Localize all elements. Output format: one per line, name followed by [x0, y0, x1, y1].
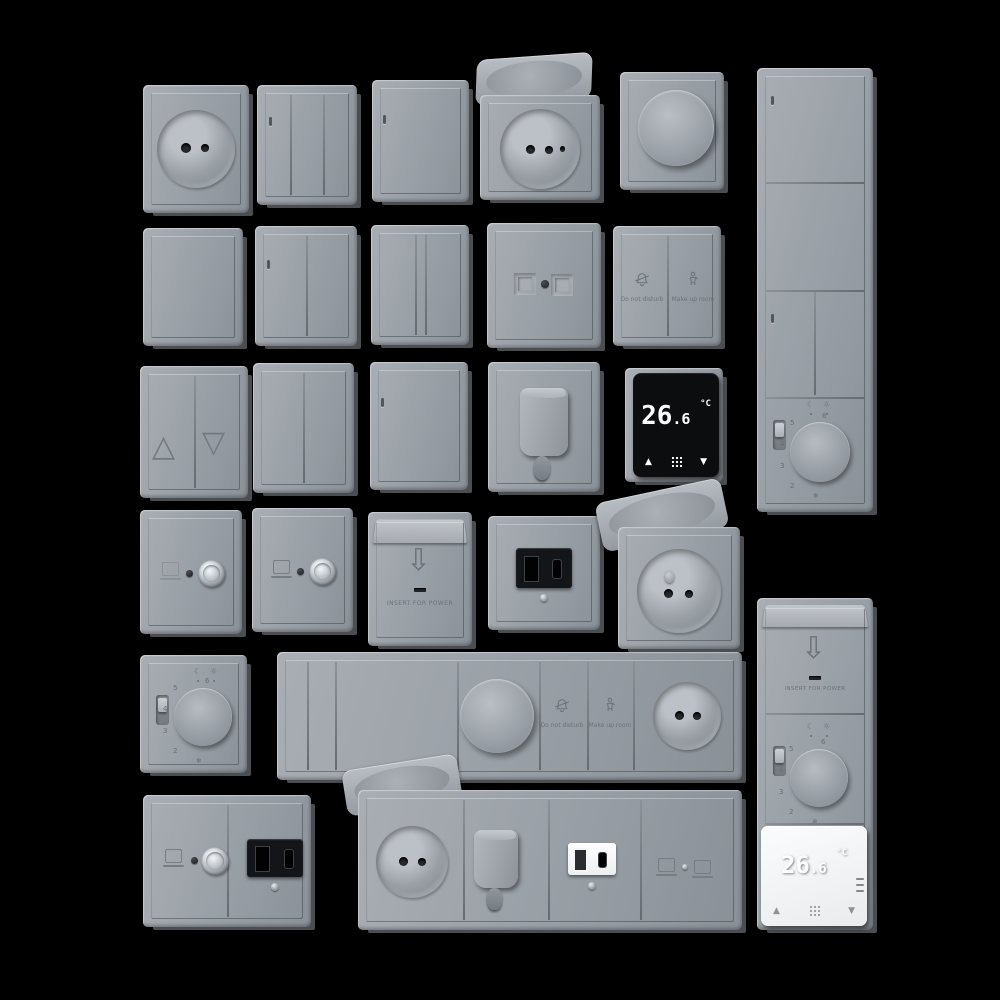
analog-thermostat-dial: ☾ ☼ 6 5 4 3 2 ❄ [140, 655, 247, 773]
triple-rocker-switch [257, 85, 357, 205]
module-seam [457, 662, 459, 770]
dimmer-knob [638, 90, 714, 166]
temperature-unit: °C [700, 399, 711, 409]
dial-mark: 6 [821, 738, 825, 746]
digital-thermostat-white: 26.6 °C ▲ ▼ [761, 826, 867, 926]
temp-down-icon: ▼ [700, 457, 707, 467]
data-outlet-icon [165, 849, 182, 863]
cable-outlet [488, 362, 600, 492]
thermostat-menu-icon [809, 905, 820, 916]
usb-charger-black [488, 516, 600, 630]
data-jack [514, 273, 536, 295]
dial-day-icon: ☼ [823, 400, 830, 409]
sat-connector [309, 558, 336, 585]
temperature-value: 26 [781, 851, 810, 879]
temperature-display: 26.6 °C [761, 848, 867, 879]
vent-slot [856, 890, 864, 892]
dial-dot [213, 680, 215, 682]
module-seam [633, 662, 635, 770]
module-seam [539, 662, 541, 770]
usb-c-port [598, 852, 607, 868]
dial-mark: 3 [779, 788, 783, 796]
data-jack-inner [555, 278, 569, 292]
dial-dot [197, 680, 199, 682]
socket-hole [399, 857, 408, 866]
dial-slider-knob [775, 749, 784, 763]
cable-spout [520, 388, 568, 456]
plate-trim [379, 233, 461, 337]
socket-recess [500, 109, 580, 189]
screw [191, 857, 198, 864]
do-not-disturb-label: Do not disturb [540, 722, 584, 729]
rocker-seam [303, 373, 305, 483]
temperature-value: 26 [641, 401, 672, 431]
multi-gang-strip: Do not disturb Make up room [277, 652, 742, 780]
dial-mark: 2 [790, 482, 794, 490]
flip-lid-socket [480, 95, 600, 200]
key-card-power-holder: ⇩ INSERT FOR POWER [368, 512, 472, 646]
rotary-dimmer [620, 72, 724, 190]
shutter-switch: △ ▽ [140, 366, 248, 498]
dial-day-icon: ☼ [823, 722, 830, 731]
dial-mark: 5 [789, 745, 793, 753]
indicator-slot [383, 115, 386, 124]
module-seam [548, 800, 550, 920]
dial-dot [810, 413, 812, 415]
dial-mark: 4 [779, 766, 783, 774]
frost-icon: ❄ [813, 492, 819, 500]
rocker-seam [425, 235, 427, 335]
temperature-decimal: .6 [810, 861, 827, 877]
temp-up-icon: ▲ [773, 906, 780, 916]
screw [588, 882, 596, 890]
data-outlet-icon [658, 858, 675, 872]
socket-hole [201, 144, 209, 152]
socket-recess [157, 110, 235, 188]
rocker-seam [335, 662, 337, 770]
cable-gland-nub [534, 456, 550, 480]
usb-a-port [255, 846, 270, 872]
single-rocker-switch [370, 362, 468, 490]
dial-mark: 3 [780, 462, 784, 470]
usb-a-port [524, 556, 539, 582]
module-seam [463, 800, 465, 920]
dial-mark: 5 [173, 684, 177, 692]
dial-mark: 4 [163, 705, 167, 713]
socket-hole [685, 590, 693, 598]
dial-mark: 4 [780, 440, 784, 448]
rocker-seam [194, 376, 196, 488]
socket-hole [664, 589, 673, 598]
data-jack-inner [518, 277, 532, 291]
rocker-seam [307, 662, 309, 770]
make-up-room-label: Make up room [588, 722, 632, 729]
status-led [809, 676, 821, 680]
usb-module [516, 548, 572, 588]
blank-plate [143, 228, 243, 346]
indicator-slot [267, 260, 270, 269]
screw [186, 570, 193, 577]
tv-sat-outlet [252, 508, 353, 632]
round-socket-plate [143, 85, 249, 213]
usb-c-port [284, 849, 294, 869]
sat-connector [201, 847, 229, 875]
rocker-seam [814, 292, 816, 395]
do-not-disturb-icon [633, 270, 651, 288]
socket-recess [637, 549, 721, 633]
data-outlet-icon [273, 560, 290, 574]
status-led [414, 588, 426, 592]
insert-for-power-label: INSERT FOR POWER [372, 600, 468, 607]
single-rocker-switch [372, 80, 469, 202]
plate-trim [380, 88, 461, 194]
screw [271, 883, 279, 891]
key-card-arrow-icon: ⇩ [801, 634, 826, 664]
thermostat-dial-knob [790, 749, 848, 807]
shutter-up-icon: △ [152, 432, 175, 462]
dimmer-knob [460, 679, 534, 753]
indicator-slot [771, 96, 774, 105]
multi-gang-strip [358, 790, 742, 930]
socket-hole [526, 145, 535, 154]
keycard-dial-thermostat-column: ⇩ INSERT FOR POWER ☾ ☼ 6 5 4 3 2 ❄ 26.6 … [757, 598, 873, 930]
earth-pin [665, 571, 674, 583]
thermostat-controls: ▲ ▼ [773, 905, 855, 916]
dial-mark: 6 [822, 412, 826, 420]
thermostat-dial-knob [174, 688, 232, 746]
double-rocker-switch [255, 226, 357, 346]
socket-side-slot [560, 146, 565, 152]
sat-connector-inner [314, 563, 331, 580]
socket-hole [545, 146, 553, 154]
screw [297, 568, 304, 575]
thermostat-face: 26.6 °C ▲ ▼ [633, 373, 719, 477]
usb-module [247, 839, 303, 877]
dial-day-icon: ☼ [210, 667, 217, 676]
thermostat-dial-knob [790, 422, 850, 482]
section-seam [766, 713, 864, 715]
render-canvas: ☾ ☼ 6 5 4 3 2 ❄ [0, 0, 1000, 1000]
dial-mark: 5 [790, 419, 794, 427]
vent-slot [856, 878, 864, 880]
rocker-seam [323, 95, 325, 195]
dial-dot [826, 735, 828, 737]
temp-up-icon: ▲ [645, 457, 652, 467]
rocker-seam [306, 236, 308, 336]
plate-trim [378, 370, 460, 482]
socket-recess [653, 682, 721, 750]
rocker-seam [766, 182, 864, 184]
thermostat-controls: ▲ ▼ [645, 456, 707, 467]
sat-connector-inner [203, 565, 220, 582]
socket-hole [418, 858, 426, 866]
indicator-slot [771, 314, 774, 323]
temperature-decimal: .6 [672, 410, 690, 428]
cable-gland-nub [487, 888, 502, 910]
temperature-display: 26.6 °C [633, 399, 719, 431]
data-jack [551, 274, 573, 296]
dual-data-outlet [487, 223, 601, 348]
digital-thermostat-black: 26.6 °C ▲ ▼ [625, 368, 723, 482]
make-up-room-icon [684, 270, 702, 288]
temp-down-icon: ▼ [848, 906, 855, 916]
plate-trim [151, 236, 235, 338]
socket-hole [693, 712, 701, 720]
dial-night-icon: ☾ [807, 400, 814, 409]
tall-switch-panel: ☾ ☼ 6 5 4 3 2 ❄ [757, 68, 873, 512]
shutter-down-icon: ▽ [202, 428, 225, 458]
socket-hole [181, 143, 191, 153]
thermostat-menu-icon [671, 456, 682, 467]
indicator-slot [269, 117, 272, 126]
data-outlet-icon [694, 860, 711, 874]
section-seam [766, 397, 864, 399]
section-seam [766, 823, 864, 825]
dial-dot [810, 735, 812, 737]
make-up-room-icon [601, 696, 619, 714]
double-rocker-switch [253, 363, 354, 493]
flip-lid-socket [618, 527, 740, 649]
usb-c-port [552, 559, 562, 579]
dial-mark: 2 [173, 747, 177, 755]
hotel-service-switch: Do not disturb Make up room [613, 226, 721, 346]
do-not-disturb-label: Do not disturb [620, 296, 664, 303]
dial-night-icon: ☾ [807, 722, 814, 731]
indicator-slot [381, 398, 384, 407]
usb-module-white [568, 843, 616, 875]
rocker-seam [415, 235, 417, 335]
dial-slider-knob [775, 423, 784, 437]
do-not-disturb-icon [553, 696, 571, 714]
sat-connector [198, 560, 225, 587]
plate-trim [376, 522, 464, 638]
plate-trim [265, 93, 349, 197]
dial-night-icon: ☾ [194, 667, 201, 676]
module-seam [587, 662, 589, 770]
dial-mark: 2 [789, 808, 793, 816]
screw [541, 280, 549, 288]
data-outlet-icon [162, 562, 179, 576]
tv-sat-usb-combo-plate [143, 795, 311, 927]
screw [540, 594, 548, 602]
sat-connector-inner [206, 852, 224, 870]
key-card-arrow-icon: ⇩ [406, 546, 431, 576]
frost-icon: ❄ [196, 757, 202, 765]
tv-sat-outlet [140, 510, 242, 634]
usb-a-port [573, 848, 588, 872]
socket-hole [675, 711, 684, 720]
socket-recess [376, 826, 448, 898]
dial-mark: 3 [163, 727, 167, 735]
lid-inner [485, 58, 582, 101]
make-up-room-label: Make up room [671, 296, 715, 303]
screw [682, 864, 688, 870]
module-seam [640, 800, 642, 920]
cable-spout [474, 830, 518, 888]
temperature-unit: °C [836, 848, 847, 858]
rocker-seam [667, 236, 669, 336]
insert-for-power-label: INSERT FOR POWER [763, 686, 867, 692]
double-rocker-switch-slim [371, 225, 469, 345]
rocker-seam [290, 95, 292, 195]
vent-slot [856, 884, 864, 886]
dial-mark: 6 [205, 677, 209, 685]
